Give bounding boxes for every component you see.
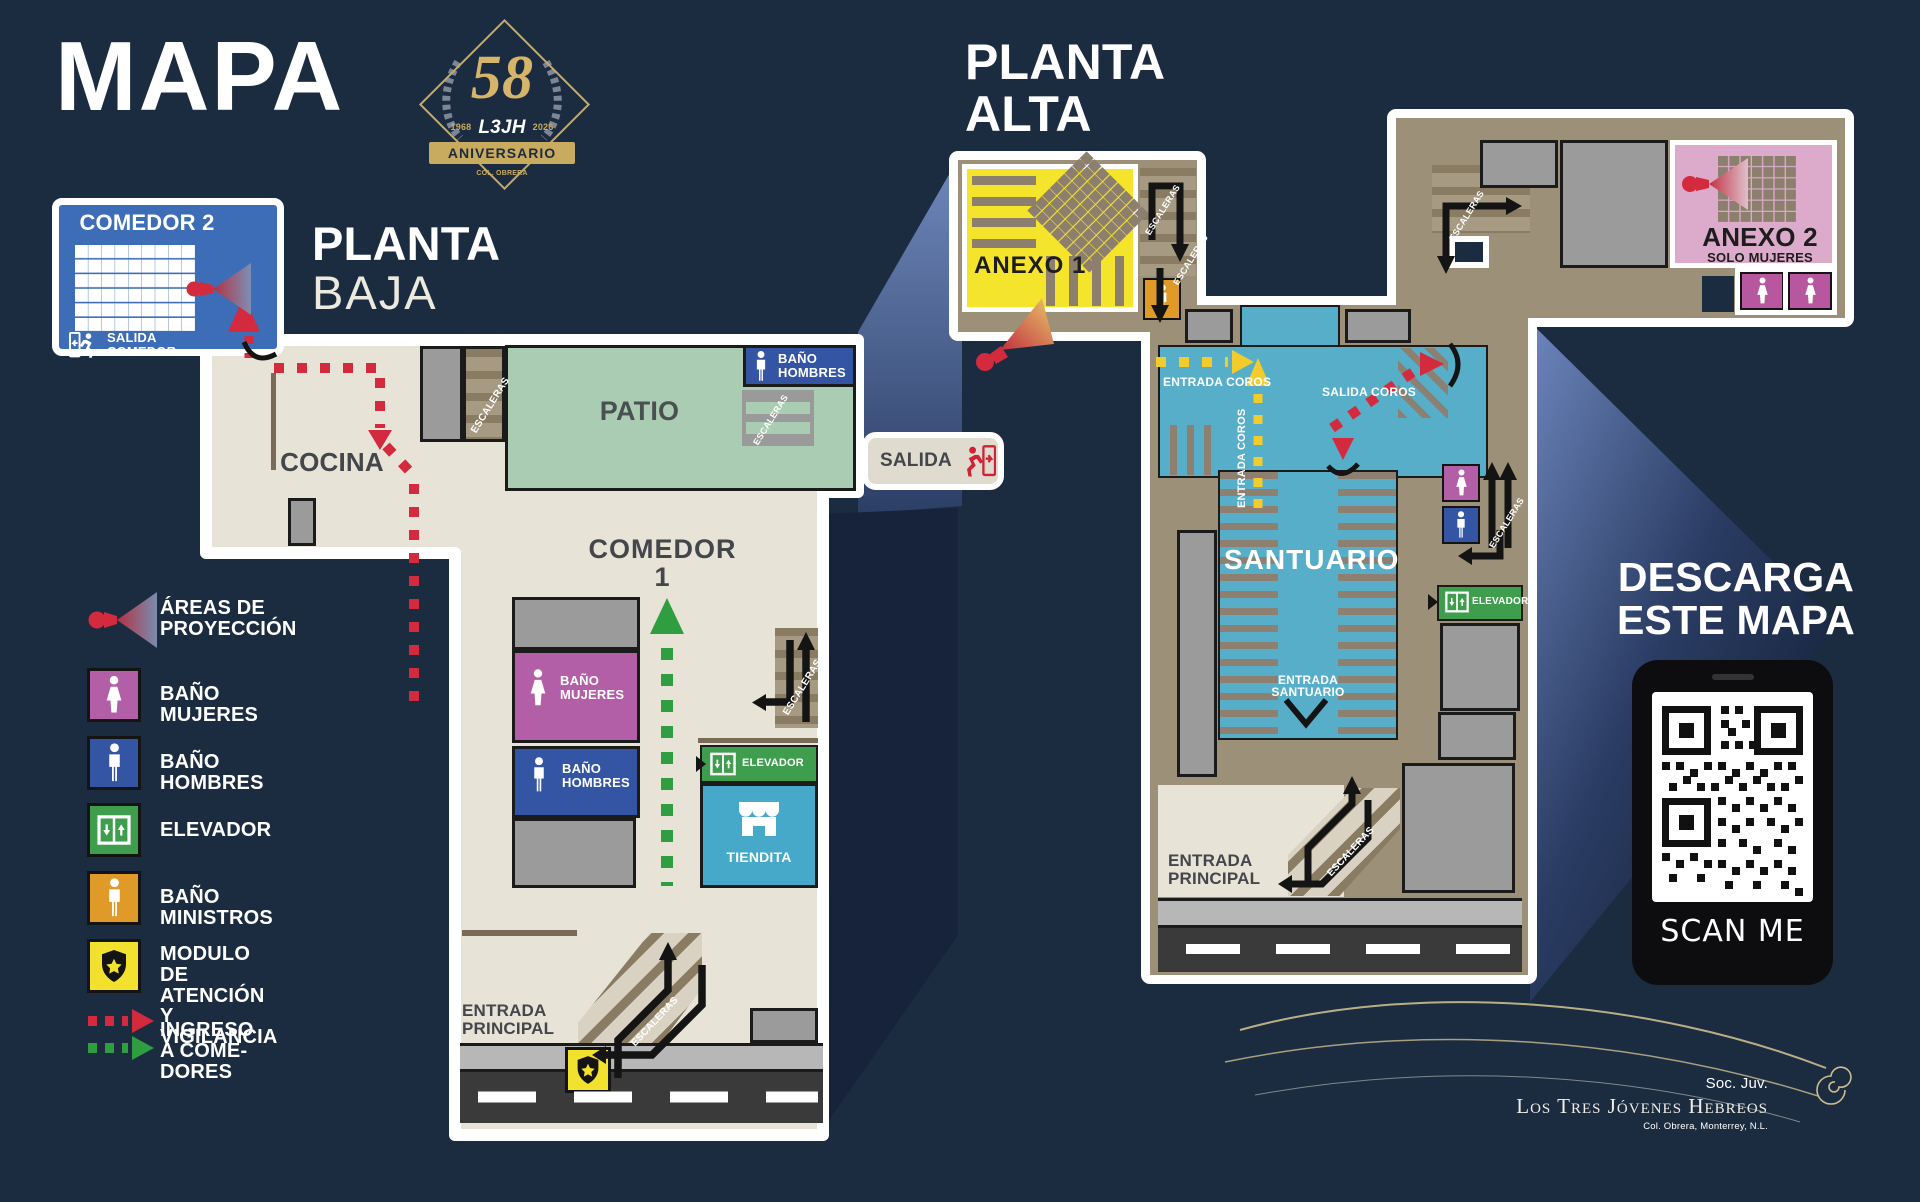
exit-run-red-icon — [960, 444, 996, 478]
download-block: DESCARGA ESTE MAPA — [1590, 556, 1882, 641]
phone-speaker — [1712, 674, 1754, 680]
legend-bathroom-ministers — [87, 871, 141, 925]
tiendita-label: TIENDITA — [706, 850, 812, 865]
cocina-block-2 — [288, 498, 316, 546]
upper-title-line1: PLANTA — [965, 36, 1165, 88]
elevator-wall — [698, 738, 818, 743]
man-icon — [528, 756, 550, 794]
upper-gray-1 — [1185, 309, 1233, 343]
shield-icon — [574, 1055, 602, 1085]
elevator-lower-icon — [710, 752, 736, 776]
security-module — [565, 1047, 611, 1093]
legend-bathroom-women — [87, 668, 141, 722]
download-line1: DESCARGA — [1590, 556, 1882, 599]
signature-name: Los Tres Jóvenes Hebreos — [1400, 1094, 1768, 1119]
scan-me-label: SCAN ME — [1632, 916, 1833, 947]
man-icon — [103, 877, 126, 919]
man-icon — [752, 350, 770, 383]
page-title: MAPA — [55, 26, 344, 128]
salida-label: SALIDA — [880, 451, 952, 471]
comedor2-seats — [75, 245, 195, 331]
elevator-icon — [710, 752, 736, 776]
patio-bathroom-men-label: BAÑO HOMBRES — [778, 352, 846, 379]
comedor2-exit-label: SALIDA COMEDOR — [107, 331, 176, 358]
woman-icon — [1802, 276, 1819, 306]
anniversary-badge: 58 1968 L3JH 2026 ANIVERSARIO COL. OBRER… — [417, 14, 592, 194]
elevator-icon — [97, 815, 131, 845]
entrada-santuario-label: ENTRADA SANTUARIO — [1258, 674, 1358, 699]
signature-org: Soc. Juv. — [1400, 1076, 1768, 1092]
entrada-coros-label: ENTRADA COROS — [1163, 376, 1271, 388]
woman-icon — [526, 668, 550, 708]
store-icon — [737, 800, 781, 838]
anexo2-bathroom-2 — [1788, 272, 1832, 310]
anexo2-subtitle: SOLO MUJERES — [1690, 251, 1830, 265]
bathroom-women-icon — [526, 668, 550, 708]
upper-gray-right-2 — [1438, 712, 1516, 760]
elevator-upper-label: ELEVADOR — [1472, 597, 1528, 607]
upper-gray-right-3 — [1402, 763, 1515, 893]
tiendita-icon — [737, 800, 781, 838]
lower-gray-block-2 — [750, 1008, 818, 1043]
patio-bathroom-men-icon — [752, 350, 770, 383]
comedor2-title: COMEDOR 2 — [67, 212, 227, 235]
badge-banner: ANIVERSARIO — [429, 142, 575, 164]
signature-block: Soc. Juv. Los Tres Jóvenes Hebreos Col. … — [1400, 1076, 1768, 1131]
legend-item-elevador-label: ELEVADOR — [160, 820, 271, 841]
legend-bathroom-men — [87, 736, 141, 790]
upper-bathroom-women — [1442, 464, 1480, 502]
lower-gray-block — [512, 818, 636, 888]
prism-left-shadow — [820, 508, 958, 1133]
woman-icon — [102, 674, 126, 716]
lower-title-line1: PLANTA — [312, 220, 500, 269]
patio-label: PATIO — [577, 397, 702, 425]
legend-item-proyeccion-label: ÁREAS DE PROYECCIÓN — [160, 598, 296, 640]
qr-code — [1652, 692, 1813, 902]
cocina-fridge-block — [420, 346, 463, 442]
santuario-label: SANTUARIO — [1224, 545, 1389, 574]
upper-road — [1158, 928, 1522, 972]
cocina-label: COCINA — [272, 449, 392, 476]
lower-sidewalk — [460, 1043, 823, 1072]
legend-item-ministros-label: BAÑO MINISTROS — [160, 887, 273, 929]
shield-icon — [98, 948, 130, 984]
upper-gray-right-1 — [1440, 623, 1520, 711]
elevator-lower-label: ELEVADOR — [742, 758, 804, 769]
wing-gray-2 — [1560, 140, 1668, 268]
map-poster: MAPA 58 1968 L3JH 2026 ANIVERSARIO COL. … — [0, 0, 1920, 1202]
qr-phone: SCAN ME — [1632, 660, 1833, 985]
upper-entrance-label: ENTRADA PRINCIPAL — [1168, 852, 1260, 887]
man-icon — [103, 742, 126, 784]
upper-bathroom-men — [1442, 506, 1480, 544]
anexo2-label: ANEXO 2 — [1690, 224, 1830, 251]
woman-icon — [1754, 276, 1771, 306]
upper-gray-2 — [1345, 309, 1411, 343]
lower-entrance-label: ENTRADA PRINCIPAL — [462, 1002, 554, 1037]
badge-number: 58 — [437, 46, 567, 110]
lower-title-line2: BAJA — [312, 269, 500, 318]
signature-location: Col. Obrera, Monterrey, N.L. — [1400, 1122, 1768, 1132]
wing-gray-1 — [1480, 140, 1558, 188]
upper-sidewalk — [1158, 898, 1522, 928]
woman-icon — [1453, 468, 1470, 498]
legend-security-module — [87, 939, 141, 993]
badge-initials: L3JH — [478, 118, 525, 138]
upper-cyan-landing — [1240, 305, 1340, 347]
anexo2-seats — [1718, 156, 1796, 222]
man-icon — [1154, 283, 1171, 315]
salida-coros-label: SALIDA COROS — [1322, 386, 1416, 398]
anexo2-bathroom-1 — [1740, 272, 1784, 310]
elevator-icon — [1445, 591, 1469, 613]
lower-floor-title: PLANTA BAJA — [312, 220, 500, 318]
legend-item-hombres-label: BAÑO HOMBRES — [160, 752, 264, 794]
bathroom-women-label: BAÑO MUJERES — [560, 674, 624, 701]
upper-floor-title: PLANTA ALTA — [965, 36, 1165, 140]
comedor2-callout: COMEDOR 2 SALIDA COMEDOR — [52, 198, 284, 356]
upper-gray-left-column — [1177, 530, 1217, 777]
lower-road — [460, 1072, 823, 1123]
coros-corner-pews — [1398, 348, 1448, 418]
badge-footnote: COL. OBRERA — [429, 170, 575, 177]
entrada-coros-vertical-label: ENTRADA COROS — [1237, 409, 1248, 508]
badge-year-right: 2026 — [533, 123, 554, 132]
badge-year-left: 1968 — [451, 123, 472, 132]
coros-left-pews — [1170, 425, 1216, 475]
comedor2-exit: SALIDA COMEDOR — [69, 331, 176, 359]
lower-entry-wall — [462, 930, 577, 936]
anexo2-doorway — [1702, 276, 1734, 312]
salida-sign: SALIDA — [862, 432, 1004, 490]
anexo1-stage-stripes — [972, 176, 1036, 254]
comedor1-label: COMEDOR 1 — [580, 535, 745, 591]
legend-item-mujeres-label: BAÑO MUJERES — [160, 684, 258, 726]
comedor1-gray-block — [512, 597, 640, 650]
exit-run-icon — [69, 331, 99, 359]
legend-item-ingreso-label: INGRESO A COME­DORES — [160, 1020, 254, 1082]
elevator-upper-icon — [1445, 591, 1469, 613]
man-icon — [1453, 510, 1469, 540]
legend-elevator — [87, 803, 141, 857]
upper-title-line2: ALTA — [965, 88, 1165, 140]
bathroom-men-label: BAÑO HOMBRES — [562, 762, 630, 789]
bathroom-men-icon — [528, 756, 550, 794]
download-line2: ESTE MAPA — [1590, 599, 1882, 642]
anexo1-label: ANEXO 1 — [974, 254, 1086, 279]
